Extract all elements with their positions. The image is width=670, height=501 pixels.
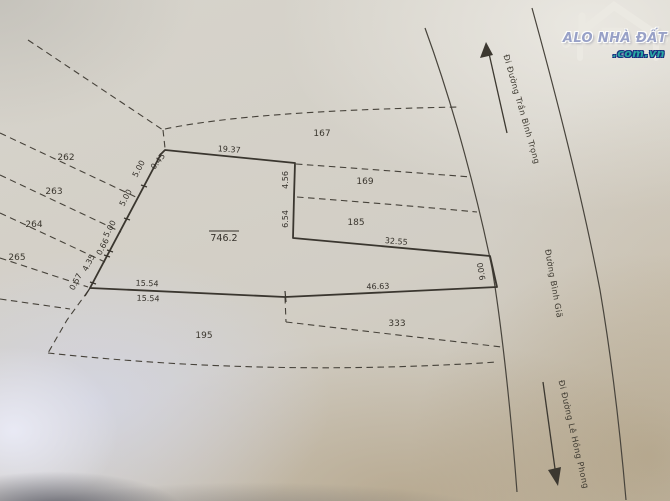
main-parcel-area: 746.2 <box>209 231 239 244</box>
parcel-195: 195 <box>195 331 212 341</box>
arrow-down-head <box>548 467 561 486</box>
road-label-to-tran-binh-trong: Đi Đường Trần Bình Trọng <box>501 53 542 165</box>
boundary-dashed <box>165 107 458 129</box>
boundary-dashed-jog <box>163 130 165 148</box>
neighbor-boundaries-bottom <box>48 291 502 368</box>
tick <box>85 288 90 296</box>
watermark-logo: ALO NHÀ ĐẤT .com.vn <box>552 0 670 72</box>
parcel-263: 263 <box>45 187 62 197</box>
arrow-down-shaft <box>543 382 556 476</box>
logo-domain: .com.vn <box>613 47 665 60</box>
dim-19-37: 19.37 <box>217 144 240 155</box>
boundary-dashed <box>0 299 70 309</box>
dim-15-54-below: 15.54 <box>136 294 159 304</box>
dim-0-57: 0.57 <box>68 272 84 292</box>
boundary-dashed <box>0 175 121 232</box>
road-labels: Đi Đường Trần Bình Trọng Đường Bình Giã … <box>501 53 591 490</box>
photo-of-survey-plan: 0.45 19.37 4.56 6.54 32.55 9.00 15.54 15… <box>0 0 670 501</box>
parcel-265: 265 <box>8 253 25 263</box>
parcel-167: 167 <box>313 129 330 139</box>
parcel-333: 333 <box>388 319 405 329</box>
main-parcel-outline <box>90 150 497 297</box>
main-parcel-path <box>90 150 497 297</box>
road-label-to-le-hong-phong: Đi Đường Lê Hồng Phong <box>557 379 592 490</box>
dim-5-00-c: 5.00 <box>131 159 147 179</box>
neighbor-boundaries-top <box>165 107 477 212</box>
dim-9-00: 9.00 <box>476 262 488 281</box>
road-edges <box>425 8 626 500</box>
dim-5-00-b: 5.00 <box>118 188 134 208</box>
parcel-169: 169 <box>356 177 373 187</box>
area-label: 746.2 <box>210 233 237 244</box>
boundary-dashed <box>296 164 471 177</box>
dim-6-54: 6.54 <box>281 210 290 228</box>
boundary-dashed <box>0 133 138 198</box>
parcel-264: 264 <box>25 220 42 230</box>
logo-title: ALO NHÀ ĐẤT <box>563 31 667 46</box>
dim-15-54-above: 15.54 <box>135 279 158 289</box>
dim-0-45: 0.45 <box>149 152 167 172</box>
boundary-dashed <box>28 40 163 130</box>
arrow-up-head <box>480 42 493 58</box>
parcel-185: 185 <box>347 218 364 228</box>
dim-32-55: 32.55 <box>384 236 408 247</box>
dim-46-63: 46.63 <box>366 282 389 292</box>
survey-plan-drawing: 0.45 19.37 4.56 6.54 32.55 9.00 15.54 15… <box>0 0 670 501</box>
survey-ticks <box>85 185 286 302</box>
dim-4-35: 4.35 <box>81 253 97 273</box>
boundary-dashed <box>48 291 88 353</box>
dimension-labels: 0.45 19.37 4.56 6.54 32.55 9.00 15.54 15… <box>68 144 488 303</box>
dim-4-56: 4.56 <box>281 171 290 189</box>
boundary-dashed <box>297 197 477 212</box>
parcel-262: 262 <box>57 153 74 163</box>
road-left-edge <box>425 28 517 492</box>
road-label-duong-binh-gia: Đường Bình Giã <box>543 248 565 318</box>
boundary-dashed <box>48 353 497 368</box>
